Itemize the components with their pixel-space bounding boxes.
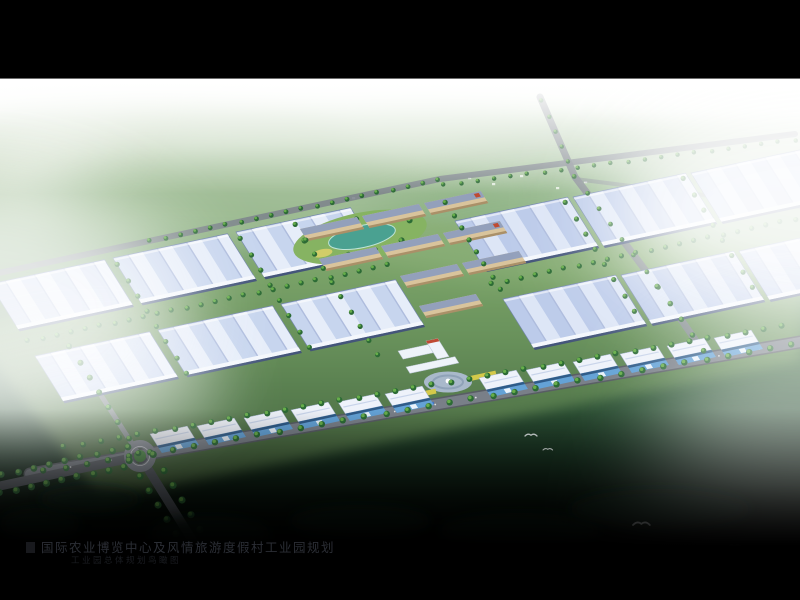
bottom-fade: [0, 409, 800, 546]
letterboxed-photo-frame: 国际农业博览中心及风情旅游度假村工业园规划 工业园总体规划鸟瞰图: [0, 0, 800, 600]
watermark-logo: [26, 542, 35, 553]
caption-line-2: 工业园总体规划鸟瞰图: [71, 555, 335, 568]
caption-line-1: 国际农业博览中心及风情旅游度假村工业园规划: [41, 540, 335, 555]
aerial-rendering-canvas: [0, 79, 800, 546]
aerial-rendering-photo: [0, 78, 800, 546]
watermark-caption: 国际农业博览中心及风情旅游度假村工业园规划 工业园总体规划鸟瞰图: [26, 540, 335, 568]
